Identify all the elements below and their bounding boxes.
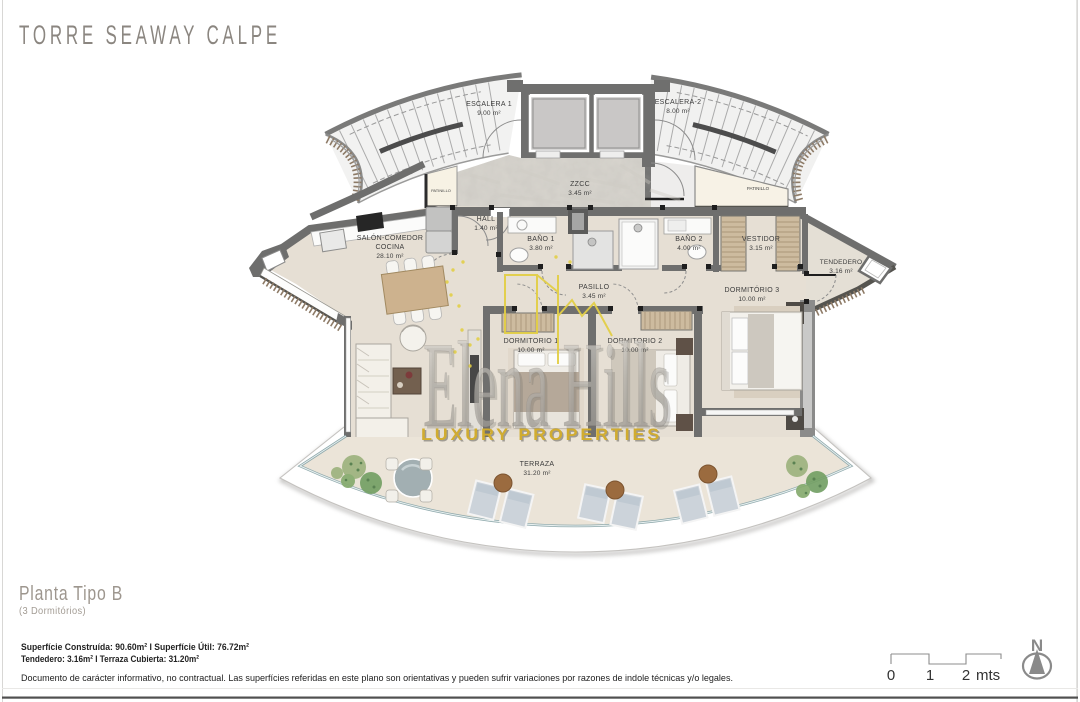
svg-text:3.80 m²: 3.80 m²	[529, 245, 553, 252]
svg-text:PATINILLO: PATINILLO	[747, 186, 770, 191]
svg-text:TORRE SEAWAY CALPE: TORRE SEAWAY CALPE	[19, 20, 281, 50]
svg-text:COCINA: COCINA	[375, 244, 404, 251]
svg-text:Tendedero: 3.16m² I Terraza Cu: Tendedero: 3.16m² I Terraza Cubierta: 31…	[21, 654, 199, 665]
svg-text:3.45 m²: 3.45 m²	[568, 190, 592, 197]
svg-text:2: 2	[962, 667, 970, 684]
svg-text:ESCALERA 1: ESCALERA 1	[466, 101, 512, 108]
svg-text:PATINILLO: PATINILLO	[431, 188, 451, 193]
svg-text:BAÑO 2: BAÑO 2	[675, 234, 702, 243]
svg-text:Planta Tipo B: Planta Tipo B	[19, 583, 123, 605]
svg-text:9.00 m²: 9.00 m²	[477, 110, 501, 117]
svg-text:28.10 m²: 28.10 m²	[376, 253, 404, 260]
svg-text:10.00 m²: 10.00 m²	[738, 296, 766, 303]
svg-text:VESTIDOR: VESTIDOR	[742, 236, 780, 243]
svg-text:SALÓN-COMEDOR: SALÓN-COMEDOR	[357, 233, 424, 242]
svg-text:4.00 m²: 4.00 m²	[677, 245, 701, 252]
svg-text:PASILLO: PASILLO	[579, 284, 610, 291]
svg-text:1: 1	[926, 667, 934, 684]
svg-text:(3 Dormitórios): (3 Dormitórios)	[19, 606, 86, 617]
svg-text:3.45 m²: 3.45 m²	[582, 293, 606, 300]
svg-text:DORMITÓRIO 3: DORMITÓRIO 3	[725, 285, 780, 294]
svg-text:Documento de carácter informat: Documento de carácter informativo, no co…	[21, 673, 733, 684]
svg-text:ZZCC: ZZCC	[570, 181, 590, 188]
svg-text:LUXURY PROPERTIES: LUXURY PROPERTIES	[421, 426, 662, 444]
svg-text:TERRAZA: TERRAZA	[520, 461, 555, 468]
svg-text:mts: mts	[976, 667, 1000, 684]
svg-text:Superfície Construída: 90.60m²: Superfície Construída: 90.60m² I Superfí…	[21, 641, 249, 653]
svg-text:TENDEDERO: TENDEDERO	[820, 259, 863, 266]
svg-text:0: 0	[887, 667, 895, 684]
svg-text:8.00 m²: 8.00 m²	[666, 108, 690, 115]
svg-text:3.15 m²: 3.15 m²	[749, 245, 773, 252]
svg-text:ESCALERA-2: ESCALERA-2	[655, 99, 702, 106]
svg-text:BAÑO 1: BAÑO 1	[527, 234, 554, 243]
svg-text:3.16 m²: 3.16 m²	[829, 268, 853, 275]
svg-text:1.40 m²: 1.40 m²	[474, 225, 498, 232]
svg-text:HALL: HALL	[477, 216, 496, 223]
svg-text:31.20 m²: 31.20 m²	[523, 470, 551, 477]
